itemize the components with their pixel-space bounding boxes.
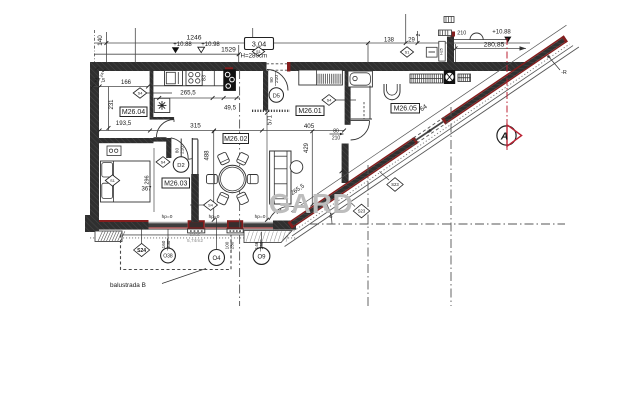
svg-text:210: 210 — [457, 30, 466, 36]
svg-text:210: 210 — [332, 136, 341, 142]
svg-text:M26.01: M26.01 — [298, 108, 321, 115]
svg-text:296: 296 — [145, 175, 151, 184]
svg-text:O38: O38 — [163, 254, 173, 260]
svg-text:231: 231 — [109, 99, 115, 110]
svg-text:S4: S4 — [327, 98, 332, 102]
svg-text:M26.02: M26.02 — [224, 136, 247, 143]
svg-text:S23: S23 — [358, 208, 366, 213]
svg-text:S1: S1 — [110, 179, 115, 183]
svg-text:H=280cm: H=280cm — [241, 52, 268, 59]
svg-text:S24: S24 — [137, 248, 146, 254]
svg-text:5,74m2: 5,74m2 — [187, 238, 203, 244]
svg-text:193,5: 193,5 — [116, 120, 132, 127]
svg-text:140: 140 — [97, 35, 104, 46]
svg-text:83: 83 — [202, 75, 208, 81]
svg-text:29: 29 — [408, 38, 415, 44]
svg-text:hp=0: hp=0 — [162, 214, 173, 220]
svg-text:S4: S4 — [208, 203, 213, 207]
svg-text:balustrada B: balustrada B — [110, 282, 146, 289]
svg-text:hp=0: hp=0 — [255, 214, 266, 220]
svg-text:280,85: 280,85 — [484, 41, 505, 48]
svg-text:90: 90 — [269, 77, 275, 83]
svg-text:M26.04: M26.04 — [122, 109, 145, 116]
svg-text:GARD: GARD — [269, 188, 353, 219]
svg-text:138: 138 — [384, 38, 395, 44]
svg-text:315: 315 — [190, 123, 201, 130]
svg-text:49,5: 49,5 — [224, 105, 237, 112]
svg-text:230: 230 — [230, 241, 235, 249]
svg-text:-R: -R — [561, 70, 567, 76]
svg-text:367: 367 — [141, 187, 152, 193]
svg-text:M26.03: M26.03 — [164, 180, 187, 187]
svg-text:S4: S4 — [138, 91, 143, 95]
svg-text:1246: 1246 — [186, 34, 201, 41]
svg-text:230: 230 — [259, 241, 264, 249]
svg-text:taras: taras — [190, 232, 201, 238]
svg-text:O9: O9 — [257, 254, 266, 260]
svg-text:265,5: 265,5 — [180, 90, 196, 97]
svg-text:166: 166 — [121, 80, 132, 86]
svg-text:230: 230 — [166, 240, 171, 248]
svg-text:2: 2 — [416, 33, 422, 36]
svg-text:hp=0: hp=0 — [209, 214, 220, 220]
svg-text:210: 210 — [180, 146, 185, 154]
svg-text:1529: 1529 — [221, 46, 236, 53]
svg-text:M26.05: M26.05 — [394, 106, 417, 113]
svg-text:D2: D2 — [177, 163, 184, 169]
svg-text:27,5: 27,5 — [94, 78, 105, 84]
svg-text:488: 488 — [205, 150, 211, 161]
svg-text:S23: S23 — [391, 182, 399, 187]
svg-text:+10.88: +10.88 — [492, 30, 511, 36]
svg-text:D5: D5 — [273, 93, 280, 99]
svg-text:S4: S4 — [161, 160, 166, 164]
svg-text:H25: H25 — [439, 48, 443, 55]
svg-text:A: A — [500, 131, 509, 143]
svg-text:O4: O4 — [212, 256, 221, 262]
svg-text:429: 429 — [304, 142, 310, 153]
svg-text:405: 405 — [304, 123, 315, 130]
svg-text:S1: S1 — [405, 50, 410, 54]
svg-text:571: 571 — [268, 114, 274, 125]
